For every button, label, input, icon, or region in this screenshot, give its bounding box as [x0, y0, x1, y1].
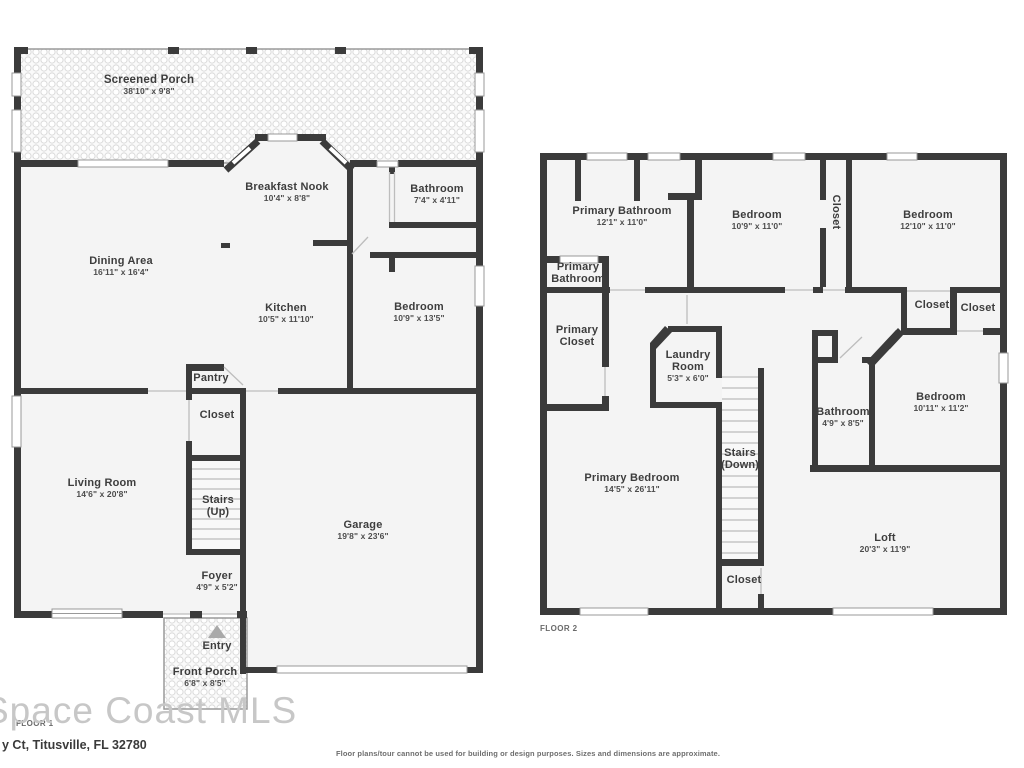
- floor1-plan: [12, 47, 484, 709]
- disclaimer-text: Floor plans/tour cannot be used for buil…: [336, 749, 720, 758]
- room-label-hall-closet: Closet: [830, 195, 842, 230]
- floor2-plan: [540, 153, 1008, 615]
- mls-watermark: Space Coast MLS: [0, 690, 297, 732]
- property-address: y Ct, Titusville, FL 32780: [2, 738, 147, 752]
- garage-door: [277, 666, 467, 673]
- floorplan-canvas: [0, 0, 1024, 768]
- floor2-caption: FLOOR 2: [540, 624, 577, 633]
